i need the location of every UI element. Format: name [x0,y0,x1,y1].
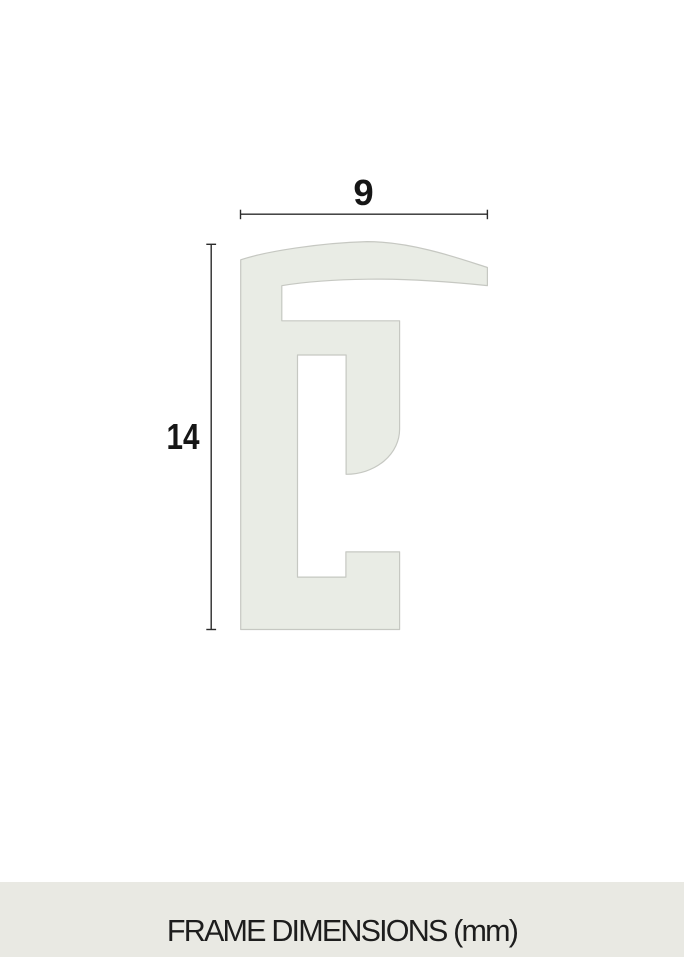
svg-text:9: 9 [353,172,373,213]
svg-text:14: 14 [167,416,200,457]
